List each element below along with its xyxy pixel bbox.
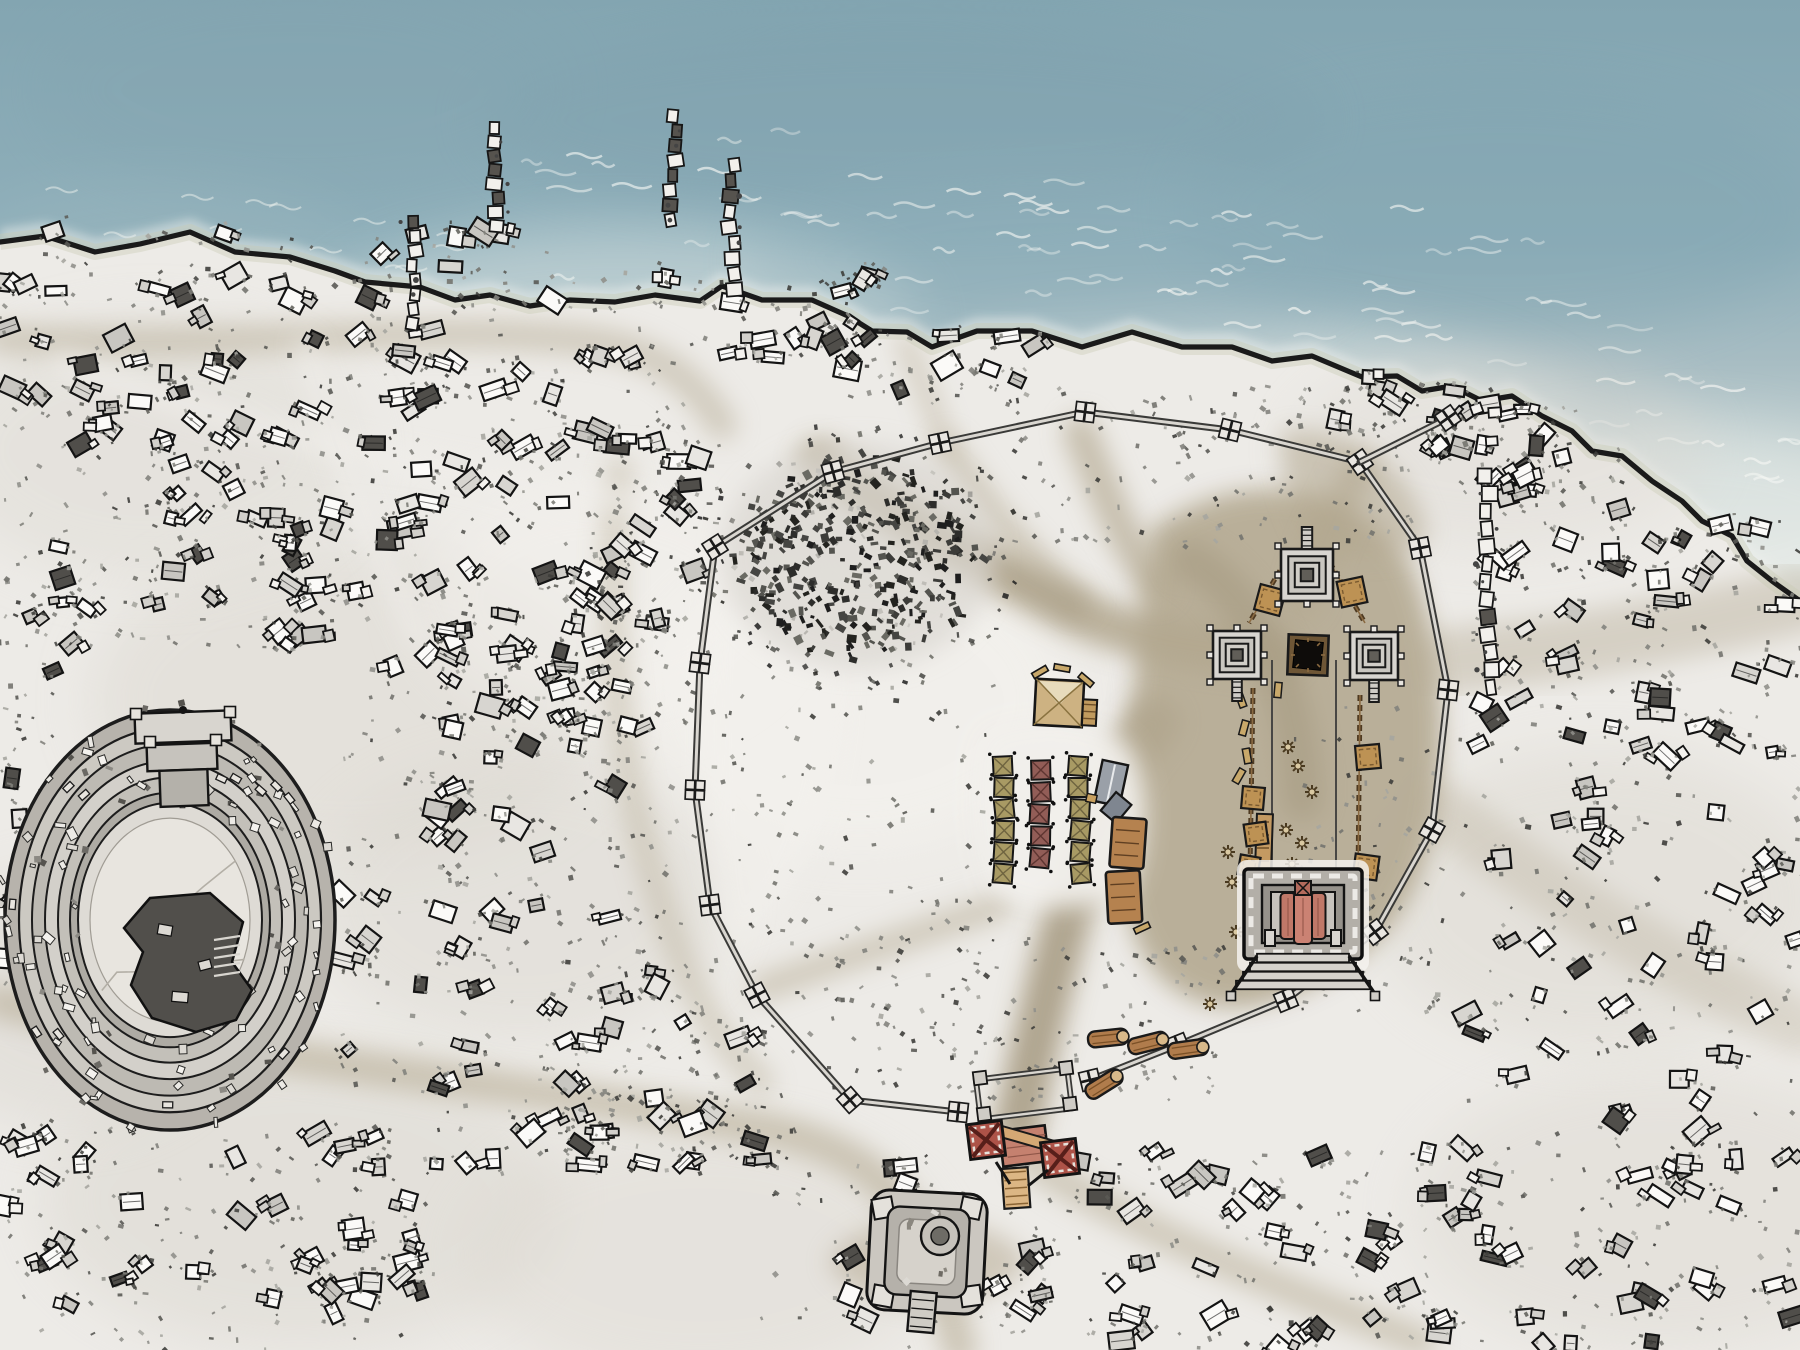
caltrop-marker (1279, 823, 1293, 837)
tent (989, 773, 1018, 802)
banner-tower (966, 1120, 1005, 1159)
tent (990, 816, 1019, 845)
caltrop-marker (1305, 785, 1319, 799)
plank-platform (1106, 870, 1143, 924)
tent (1026, 756, 1055, 785)
caltrop-marker (1221, 845, 1235, 859)
wood-platform (1244, 822, 1269, 847)
wall-tower (699, 894, 720, 915)
caltrop-marker (1291, 759, 1305, 773)
caltrop-marker (1295, 836, 1309, 850)
wall-tower (821, 460, 844, 483)
wall-tower (929, 432, 952, 455)
wall-tower (1437, 679, 1458, 700)
caltrop-marker (1203, 997, 1217, 1011)
tent (1026, 822, 1055, 851)
wood-platform (1355, 744, 1381, 770)
wall-tower (685, 780, 705, 800)
ruined-building (414, 974, 428, 994)
wall-tower (948, 1102, 969, 1123)
excavation-pit (1287, 634, 1328, 675)
caltrop-marker (1281, 740, 1295, 754)
log-pile (1087, 1028, 1129, 1048)
ruined-building (612, 679, 635, 693)
wall-tower (1219, 419, 1242, 442)
caltrop-marker (1225, 875, 1239, 889)
wall-tower (689, 652, 710, 673)
plank-platform (1109, 817, 1146, 869)
fantasy-region-map (0, 0, 1800, 1350)
red-temple (1227, 860, 1380, 1001)
wall-tower (1074, 401, 1095, 422)
wood-platform (1337, 577, 1368, 608)
wall-tower (1409, 537, 1431, 559)
map-canvas (0, 0, 1800, 1350)
wood-platform (1241, 786, 1265, 810)
